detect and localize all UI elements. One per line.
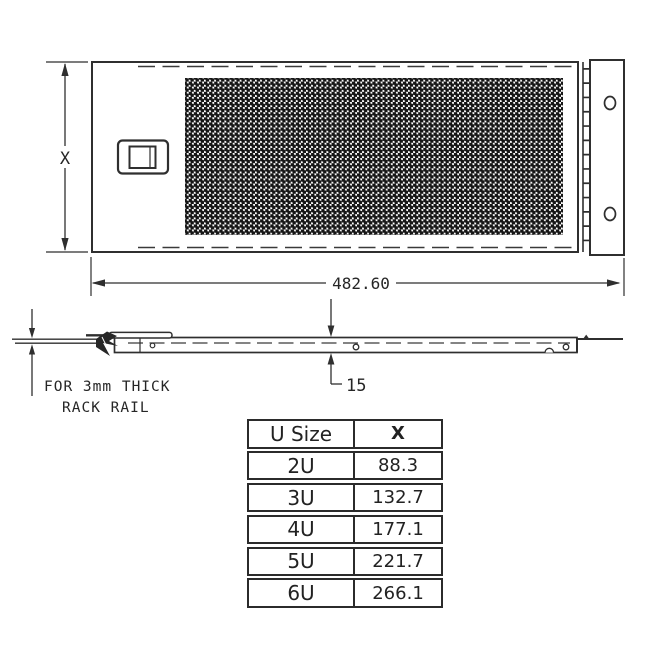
height-dimension: X (46, 62, 88, 252)
header-x: X (353, 421, 441, 447)
arrow-right-icon (607, 279, 621, 286)
u-size-cell: 2U (249, 453, 353, 479)
width-dimension: 482.60 (91, 257, 624, 296)
mounting-flange (590, 60, 624, 255)
u-size-cell: 6U (249, 580, 353, 606)
arrow-up-icon (61, 63, 68, 76)
rail-note-line2: RACK RAIL (62, 400, 150, 416)
latch-profile-cover (109, 332, 172, 338)
perforated-mesh-grille (185, 78, 563, 235)
flange-outline (590, 60, 624, 255)
profile-right-tab (583, 335, 589, 339)
profile-notch (545, 348, 554, 352)
table-row: 6U 266.1 (247, 578, 443, 608)
latch-button (130, 147, 156, 169)
u-size-cell: 3U (249, 485, 353, 511)
thickness-dim-label: 15 (346, 376, 366, 396)
header-u-size: U Size (249, 421, 353, 447)
drawing-canvas: X 482.60 (0, 0, 650, 650)
mounting-hole-top (605, 97, 616, 110)
profile-hole-right (563, 344, 569, 350)
mounting-hole-bottom (605, 208, 616, 221)
x-value-cell: 221.7 (353, 549, 441, 575)
profile-right-step (577, 339, 623, 353)
table-header-row: U Size X (247, 419, 443, 449)
arrow-up-icon (29, 344, 35, 354)
table-row: 4U 177.1 (247, 515, 443, 545)
arrow-down-icon (61, 238, 68, 251)
x-value-cell: 266.1 (353, 580, 441, 606)
x-value-cell: 132.7 (353, 485, 441, 511)
hinge-strip (583, 60, 590, 254)
side-view (12, 332, 623, 357)
rail-note: FOR 3mm THICK RACK RAIL (29, 309, 171, 416)
table-row: 5U 221.7 (247, 547, 443, 577)
profile-hole-left (150, 343, 155, 348)
x-value-cell: 88.3 (353, 453, 441, 479)
front-view (92, 60, 624, 255)
width-dim-label: 482.60 (332, 274, 390, 293)
arrow-down-icon (29, 328, 35, 338)
latch (118, 141, 168, 174)
u-size-table: U Size X 2U 88.3 3U 132.7 4U 177.1 5U 22… (247, 419, 443, 608)
panel-profile-bar (115, 338, 578, 353)
table-row: 3U 132.7 (247, 483, 443, 513)
rail-note-line1: FOR 3mm THICK (44, 379, 171, 395)
height-dim-label: X (60, 149, 71, 169)
arrow-down-icon (328, 326, 335, 338)
table-row: 2U 88.3 (247, 451, 443, 481)
profile-hole-mid (353, 344, 359, 350)
u-size-cell: 4U (249, 517, 353, 543)
x-value-cell: 177.1 (353, 517, 441, 543)
arrow-up-icon (328, 353, 335, 365)
u-size-cell: 5U (249, 549, 353, 575)
arrow-left-icon (92, 279, 106, 286)
